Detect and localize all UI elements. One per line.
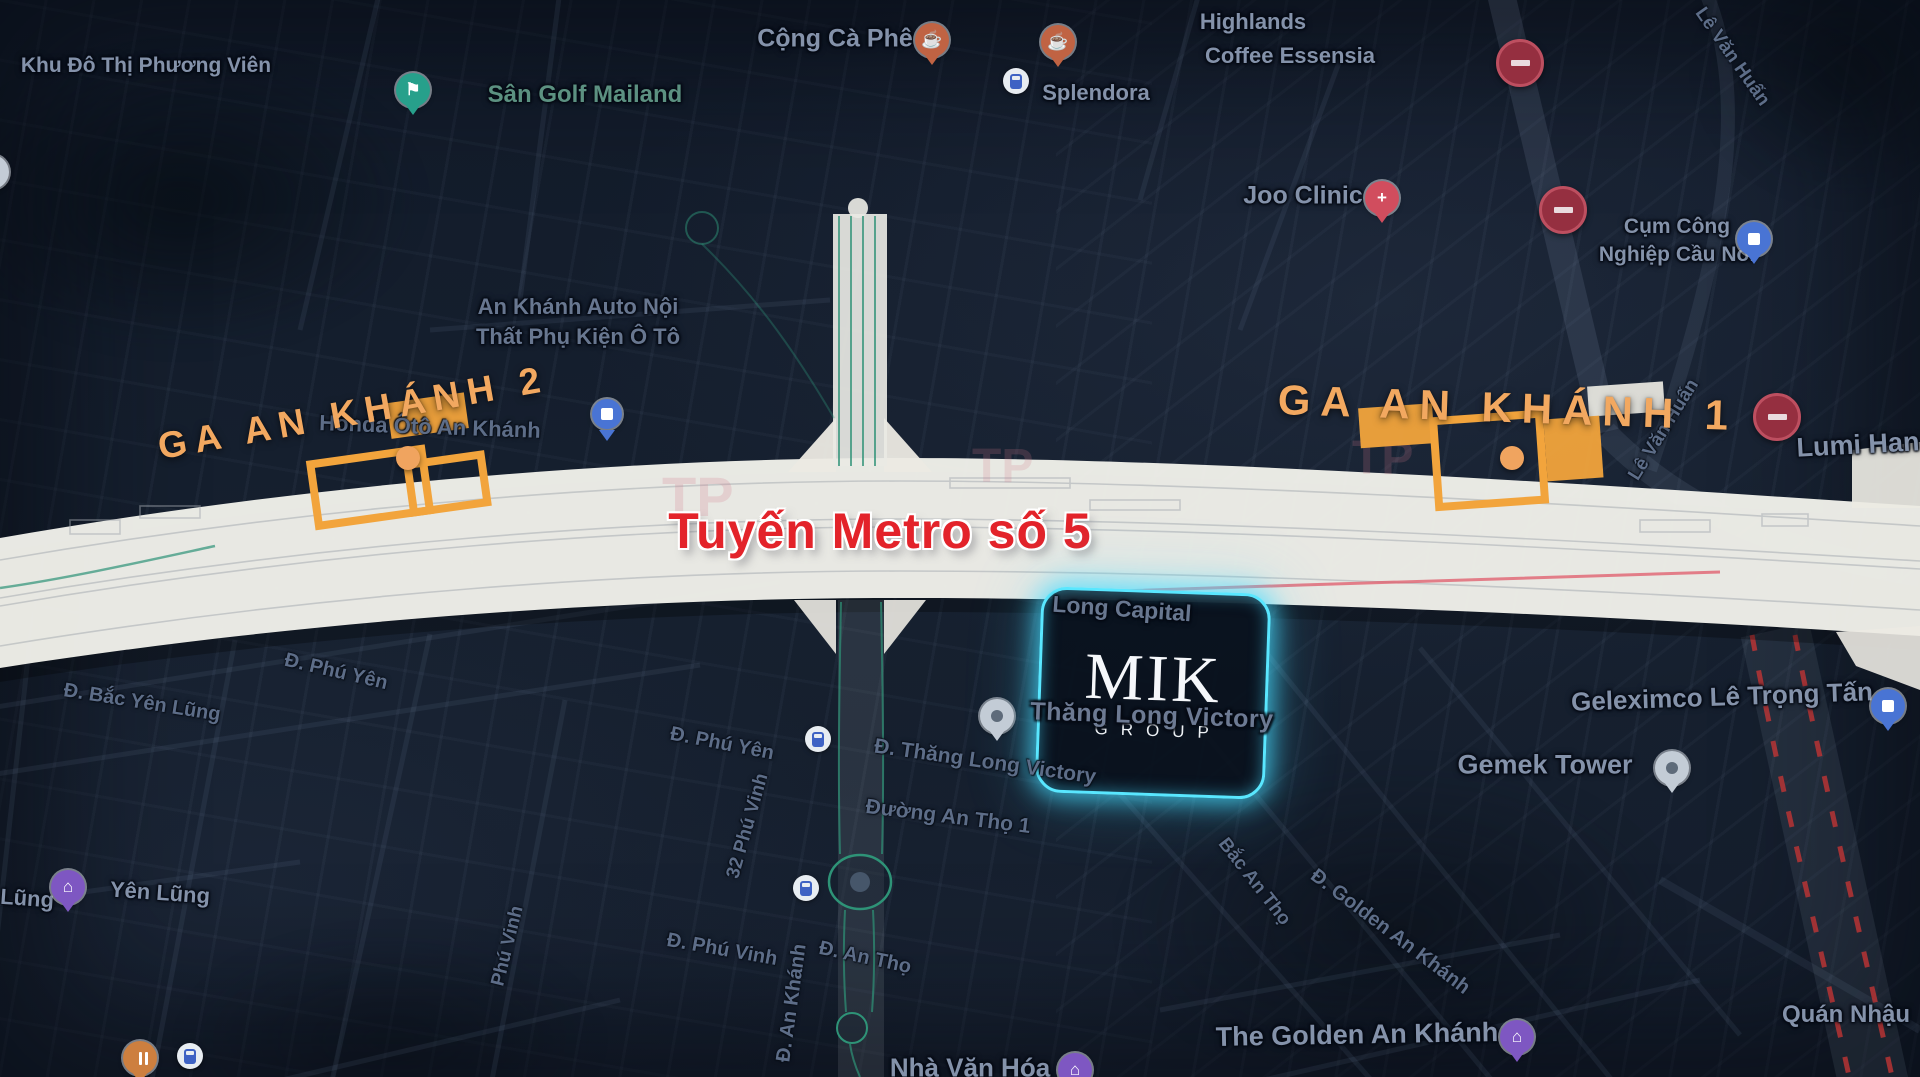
label-highlands-line2: Coffee Essensia bbox=[1205, 43, 1375, 69]
promo-map: TP TP TP bbox=[0, 0, 1920, 1077]
restaurant-pin bbox=[123, 1041, 157, 1075]
bus-stop-icon-phu-yen bbox=[805, 726, 831, 752]
metro-line-label: Tuyến Metro số 5 bbox=[668, 502, 1091, 560]
place-pin-right-edge bbox=[1871, 689, 1905, 723]
bus-stop-icon-yen-lung bbox=[177, 1043, 203, 1069]
no-entry-icon-3 bbox=[1753, 393, 1801, 441]
golf-pin: ⚑ bbox=[396, 73, 430, 107]
coffee-pin-highlands: ☕ bbox=[1041, 25, 1075, 59]
place-pin-cum-cong bbox=[1737, 222, 1771, 256]
station-dot-ga-2 bbox=[396, 446, 420, 470]
label-joo-clinic: Joo Clinic bbox=[1243, 182, 1362, 211]
label-the-golden-an-khanh: The Golden An Khánh bbox=[1216, 1017, 1499, 1053]
bus-stop-icon-an-khanh bbox=[793, 875, 819, 901]
label-nha-van-hoa: Nhà Văn Hóa bbox=[890, 1053, 1050, 1077]
station-dot-ga-1 bbox=[1500, 446, 1524, 470]
label-gemek-tower: Gemek Tower bbox=[1457, 750, 1632, 781]
place-pin-gemek bbox=[1655, 751, 1689, 785]
label-quan-nhau: Quán Nhậu bbox=[1782, 1001, 1910, 1029]
label-highlands-line1: Highlands bbox=[1200, 9, 1306, 35]
label-san-golf-mailand: Sân Golf Mailand bbox=[488, 81, 683, 109]
clinic-pin: + bbox=[1365, 181, 1399, 215]
place-pin-thang-long-victory bbox=[980, 699, 1014, 733]
label-cong-ca-phe: Cộng Cà Phê bbox=[757, 25, 913, 54]
label-splendora: Splendora bbox=[1042, 80, 1150, 106]
coffee-pin-cong-ca-phe: ☕ bbox=[915, 23, 949, 57]
shop-pin-honda bbox=[592, 399, 622, 429]
no-entry-icon-1 bbox=[1496, 39, 1544, 87]
label-cum-cong-line2: Nghiệp Cầu Nổi bbox=[1599, 243, 1755, 267]
label-cum-cong-line1: Cụm Công bbox=[1624, 215, 1730, 239]
bus-stop-icon-splendora bbox=[1003, 68, 1029, 94]
temple-pin-yen-lung: ⌂ bbox=[51, 870, 85, 904]
no-entry-icon-2 bbox=[1539, 186, 1587, 234]
label-an-khanh-auto-line1: An Khánh Auto Nội bbox=[478, 294, 679, 320]
temple-pin-golden: ⌂ bbox=[1500, 1020, 1534, 1054]
label-lumi: Lumi Han bbox=[1796, 426, 1920, 463]
drawing-watermark: TP bbox=[972, 440, 1033, 493]
label-an-khanh-auto-line2: Thất Phụ Kiện Ô Tô bbox=[476, 324, 680, 350]
label-khu-do-thi-phuong-vien: Khu Đô Thị Phương Viên bbox=[21, 54, 271, 78]
